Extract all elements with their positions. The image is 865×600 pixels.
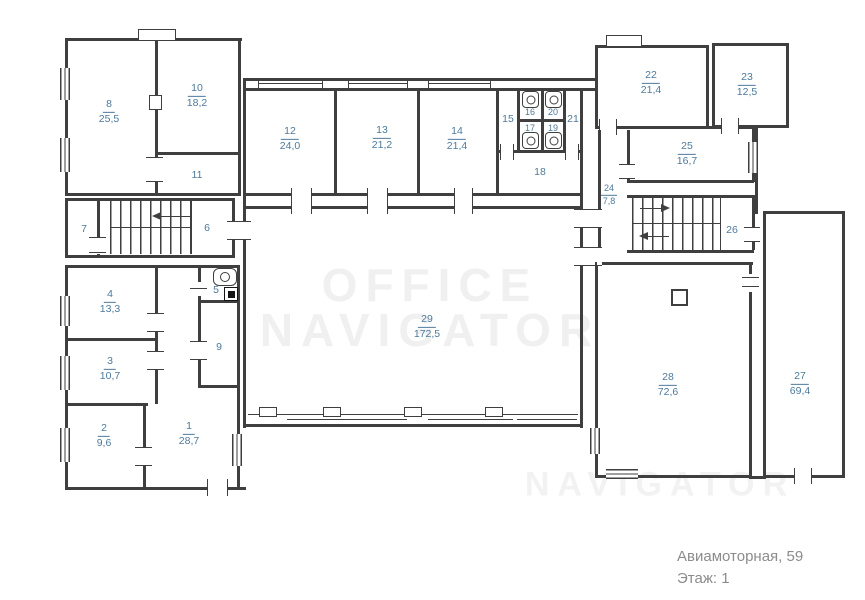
room-label-2: 29,6 [97,422,112,450]
pilaster [485,407,503,417]
room-label-27: 2769,4 [790,370,810,398]
window-pier [258,78,259,90]
wall [65,265,240,268]
stove-icon [224,287,238,301]
door-tick [574,247,602,248]
room-label-11: 11 [189,169,206,183]
window-pier [490,78,491,90]
door-tick [227,221,251,222]
door-tick [744,241,760,242]
stair-edge [720,197,721,250]
door-tick [135,447,152,448]
window [60,68,70,100]
window [606,469,638,479]
window [287,419,407,420]
door-tick [146,181,163,182]
room-label-8: 825,5 [99,98,119,126]
door-tick [147,331,164,332]
stair-landing-line [110,227,192,228]
window [590,428,600,454]
window-pier [428,78,429,90]
stair-arrow-icon [639,232,648,240]
room-label-22: 2221,4 [641,69,661,97]
door-tick [742,277,759,278]
wall [544,119,565,122]
door-tick [89,252,106,253]
wall [198,385,237,388]
window [60,138,70,172]
room-label-24: 247,8 [601,183,617,207]
stair-arrow-shaft [160,216,190,217]
door-gap [231,222,236,240]
door-tick [472,188,473,214]
window [428,83,490,84]
door-gap [242,222,247,240]
window-bump [606,35,642,47]
wall [595,45,598,128]
room-label-13: 1321,2 [372,124,392,152]
wall [842,211,845,478]
room-label-17: 17 [522,123,538,135]
wall [627,250,754,253]
door-tick [367,188,368,214]
door-tick [500,144,501,160]
window [348,83,407,84]
wall [712,43,789,46]
door-tick [744,227,760,228]
column [671,289,688,306]
door-gap [579,210,584,228]
window-bump [138,29,176,41]
room-label-3: 310,7 [100,355,120,383]
door-tick [190,341,207,342]
door-gap [154,158,159,182]
door-tick [574,209,602,210]
wall [595,262,753,265]
door-tick [616,119,617,135]
door-gap [154,314,159,332]
stair-arrow-icon [152,212,161,220]
floor-plan: OFFICE NAVIGATOR NAVIGATOR [0,0,865,600]
window-pier [322,78,323,90]
door-tick [147,313,164,314]
wall [155,152,241,155]
room-label-12: 1224,0 [280,125,300,153]
door-gap [600,125,616,130]
door-tick [454,188,455,214]
window [517,419,577,420]
room-label-14: 1421,4 [447,125,467,153]
door-tick [147,369,164,370]
wall [749,262,752,478]
wall [143,403,146,489]
pilaster [323,407,341,417]
stair-edge [191,201,192,254]
window [232,434,242,466]
wall [706,45,709,128]
door-tick [147,351,164,352]
wall [65,255,235,258]
door-gap [579,248,584,266]
wall [243,78,246,428]
stair-arrow-shaft [647,236,669,237]
door-gap [142,448,147,466]
toilet-icon [522,91,539,108]
door-tick [227,239,251,240]
door-tick [207,479,208,496]
door-gap [292,192,312,210]
door-tick [146,157,163,158]
wall [243,424,583,427]
wall [65,38,68,196]
room-label-21: 21 [564,113,582,127]
toilet-icon [545,91,562,108]
room-label-5: 5 [210,284,222,298]
wall [496,90,499,194]
door-gap [154,352,159,370]
pilaster [404,407,422,417]
room-label-18: 18 [531,166,549,180]
door-tick [513,144,514,160]
door-gap [455,192,473,210]
wall [334,90,337,194]
wall [519,119,543,122]
room-label-28: 2872,6 [658,371,678,399]
door-tick [578,144,579,160]
room-label-15: 15 [499,113,517,127]
wall [238,38,241,196]
door-tick [738,118,739,134]
door-gap [501,149,513,154]
room-label-4: 413,3 [100,288,120,316]
window [60,356,70,390]
window-pier [348,78,349,90]
wall [68,403,148,406]
wall [417,90,420,194]
room-label-23: 2312,5 [737,71,757,99]
footer-floor: Этаж: 1 [677,570,730,587]
wall [243,78,597,81]
door-tick [89,237,106,238]
door-tick [387,188,388,214]
door-tick [574,265,602,266]
door-tick [190,359,207,360]
room-label-20: 20 [545,107,561,119]
door-gap [208,486,228,491]
pilaster [259,407,277,417]
room-label-7: 7 [78,223,90,237]
stair-landing-line [632,223,720,224]
door-tick [574,227,602,228]
door-tick [619,164,635,165]
door-gap [597,210,602,228]
door-tick [811,468,812,484]
window-pier [407,78,408,90]
room-label-10: 1018,2 [187,82,207,110]
wall [786,43,789,128]
wall [155,268,158,404]
window [60,296,70,326]
wall [712,43,715,128]
watermark-text: NAVIGATOR [525,466,795,505]
room-label-26: 26 [723,224,741,238]
wall [65,193,241,196]
window [60,428,70,462]
door-gap [751,228,756,242]
room-label-16: 16 [522,107,538,119]
door-gap [197,342,202,360]
wall [763,211,766,478]
door-tick [619,178,635,179]
door-tick [742,286,759,287]
wall [65,198,68,258]
footer-address: Авиамоторная, 59 [677,548,803,565]
window [258,83,322,84]
window [428,419,513,420]
door-tick [135,465,152,466]
window [748,142,758,173]
door-tick [311,188,312,214]
room-label-19: 19 [545,123,561,135]
room-label-6: 6 [201,222,213,236]
wall [243,88,597,91]
wall [68,338,157,341]
door-tick [227,479,228,496]
door-gap [566,149,578,154]
door-gap [597,248,602,266]
wall [627,180,754,183]
door-tick [721,118,722,134]
door-tick [291,188,292,214]
room-label-1: 128,7 [179,420,199,448]
door-tick [599,119,600,135]
wall [763,211,845,214]
room-label-25: 2516,7 [677,140,697,168]
room-label-29: 29172,5 [414,313,440,341]
door-gap [626,165,631,179]
door-gap [795,474,812,479]
room-label-9: 9 [213,341,225,355]
door-gap [368,192,388,210]
door-tick [565,144,566,160]
column [149,95,162,110]
door-gap [722,124,738,129]
door-tick [794,468,795,484]
stair-arrow-shaft [640,208,662,209]
stair-arrow-icon [661,204,670,212]
door-tick [190,288,207,289]
